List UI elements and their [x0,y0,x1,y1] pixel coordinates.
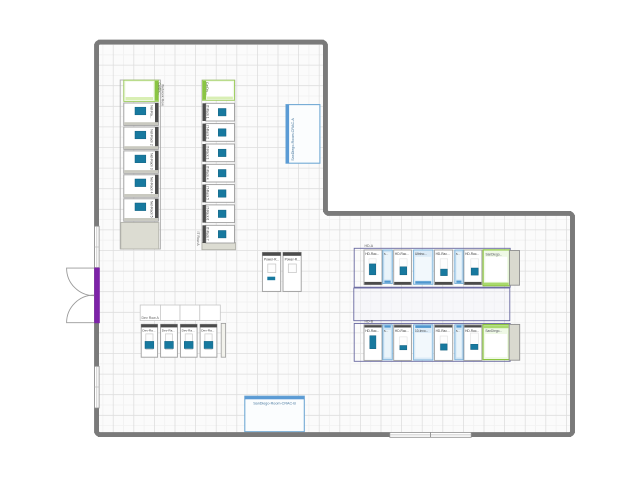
svg-text:Dev-Ra...: Dev-Ra... [162,329,175,333]
svg-text:Net-Rack 4: Net-Rack 4 [149,177,153,194]
svg-text:Ultrino...: Ultrino... [415,252,427,256]
svg-text:HD-Rac...: HD-Rac... [465,252,479,256]
svg-text:10-Invo...: 10-Invo... [415,329,428,333]
svg-text:S...: S... [384,252,389,256]
svg-text:HD-B: HD-B [365,319,374,323]
svg-text:IT-Rack 7: IT-Rack 7 [206,227,210,241]
svg-text:IT Row A: IT Row A [196,232,200,247]
svg-text:Network Row: Network Row [161,85,165,107]
svg-text:IT-Rack 2: IT-Rack 2 [206,125,210,139]
svg-text:IT-Rack 4: IT-Rack 4 [206,166,210,180]
svg-text:IT-Rack 6: IT-Rack 6 [206,207,210,221]
svg-text:S...: S... [456,252,461,256]
svg-text:Net-Rack 3: Net-Rack 3 [149,153,153,170]
svg-text:HD-Rac...: HD-Rac... [436,329,450,333]
svg-text:IT-Rack 1: IT-Rack 1 [206,105,210,119]
svg-text:Net-Rack 5: Net-Rack 5 [149,201,153,218]
svg-text:HD-Rac...: HD-Rac... [365,252,379,256]
svg-text:CarDis...: CarDis... [205,82,209,95]
svg-text:SanDiego...: SanDiego... [485,329,502,333]
svg-text:HD-Rac...: HD-Rac... [395,252,409,256]
svg-text:IT-Rack 5: IT-Rack 5 [206,186,210,200]
svg-text:S...: S... [456,329,461,333]
svg-text:Power-R...: Power-R... [264,257,279,261]
svg-text:Dev Row A: Dev Row A [142,316,160,320]
svg-text:SanDiego-Room-CRAC-A: SanDiego-Room-CRAC-A [291,118,295,161]
svg-text:S...: S... [384,329,389,333]
svg-text:Net-Rack 2: Net-Rack 2 [149,129,153,146]
svg-text:Net-Ra...: Net-Ra... [149,105,153,118]
svg-text:SanDiego-Room-CRAC-B: SanDiego-Room-CRAC-B [253,401,296,405]
svg-text:HD-Rac...: HD-Rac... [395,329,409,333]
svg-text:Power-R...: Power-R... [285,257,300,261]
svg-text:HD-Rac...: HD-Rac... [436,252,450,256]
svg-text:HD-A: HD-A [365,244,374,248]
svg-text:Dev-Ra...: Dev-Ra... [201,329,214,333]
svg-text:HD-Rac...: HD-Rac... [365,329,379,333]
svg-text:CarDis...: CarDis... [157,83,161,96]
svg-text:Dev-Ra...: Dev-Ra... [142,329,155,333]
svg-text:SanDiego...: SanDiego... [486,252,503,256]
svg-text:IT-Rack 3: IT-Rack 3 [206,146,210,160]
svg-text:Dev-Ra...: Dev-Ra... [182,329,195,333]
svg-text:HD-Rac...: HD-Rac... [465,329,479,333]
